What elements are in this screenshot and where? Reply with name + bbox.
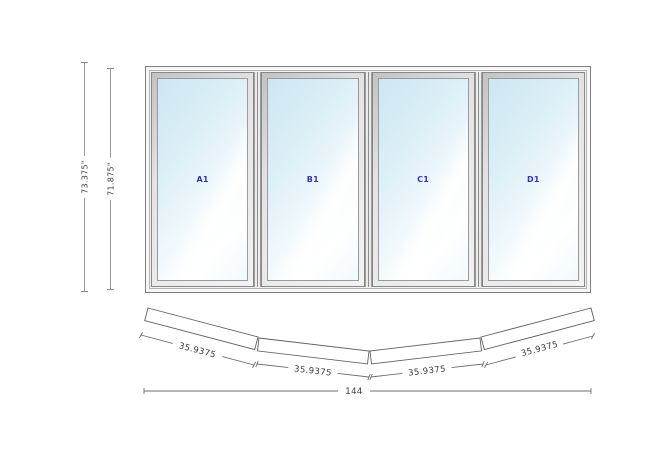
drawing-canvas: 73.375" 71.875" A1 B1 C1 D1 xyxy=(0,0,671,453)
plan-segment-4 xyxy=(481,308,594,350)
plan-dim-total: 144 xyxy=(144,387,591,397)
plan-dim-1-label: 35.9375 xyxy=(178,341,217,360)
plan-dim-3-label: 35.9375 xyxy=(408,364,447,378)
plan-segment-3 xyxy=(370,338,482,364)
plan-segment-2 xyxy=(258,338,370,364)
plan-dim-2-label: 35.9375 xyxy=(293,364,332,378)
plan-segment-1 xyxy=(145,308,258,350)
plan-dim-3: 35.9375 xyxy=(370,361,484,380)
plan-dim-2: 35.9375 xyxy=(256,361,370,380)
plan-dim-total-label: 144 xyxy=(345,387,362,397)
plan-view: 35.9375 35.9375 35.9375 35.9375 xyxy=(0,0,671,453)
plan-dim-4-label: 35.9375 xyxy=(520,340,559,359)
